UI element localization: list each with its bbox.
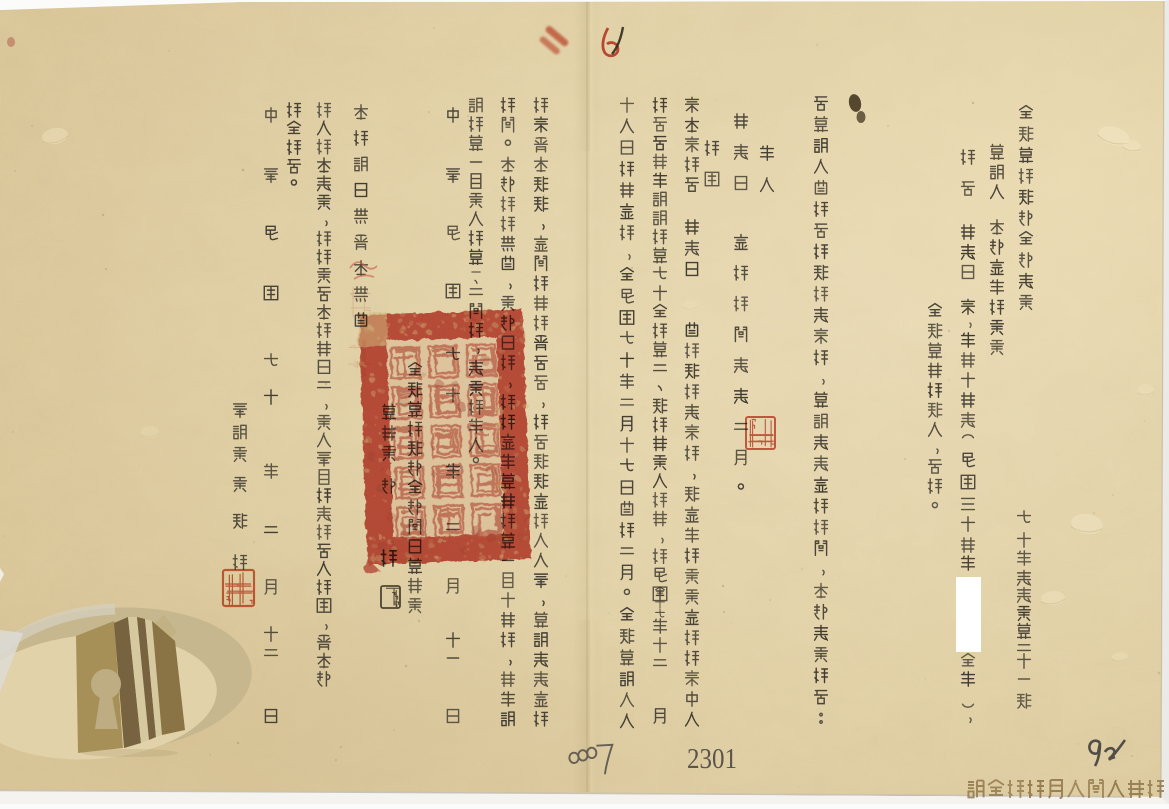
svg-text:2301: 2301 [687,743,737,775]
